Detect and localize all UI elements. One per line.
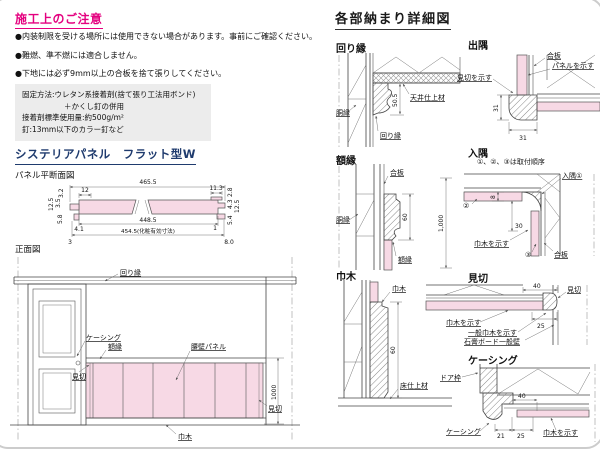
detail-casing-diagram: 40 21 25 ドア枠 ケーシング 巾木を示す [440, 364, 600, 446]
cs-dim-12-5-right: 12.5 [234, 199, 241, 213]
dc-dim-21: 21 [497, 433, 505, 440]
dc-label-casing: ケーシング [446, 427, 481, 436]
di-dim-30: 30 [515, 223, 523, 230]
cs-dim-3-5: 3.5 [55, 198, 62, 208]
fv-label-casing: ケーシング [86, 333, 121, 342]
dm-dimension: 50.5 [390, 84, 404, 115]
cs-dim-1: 1 [213, 225, 217, 232]
fv-label-frame: 額縁 [108, 342, 122, 351]
di-labels: 入隅① ② 巾木を示す ③ 合板 [463, 171, 582, 259]
dg-dim-60: 60 [402, 213, 409, 221]
fv-label-crown: 回り縁 [120, 268, 141, 277]
cs-dim-4-1: 4.1 [74, 226, 84, 233]
fixing-line-4: 釘:13mm以下のカラー釘など [22, 124, 204, 136]
fv-label-habaki: 巾木 [178, 432, 192, 441]
dc-labels: ドア枠 ケーシング 巾木を示す [440, 373, 578, 437]
fv-dimension: 1000 [264, 358, 284, 424]
dh-dim-60: 60 [390, 346, 397, 354]
dmi-label-habaki: 巾木を示す [446, 318, 481, 327]
fv-label-panel: 腰壁パネル [191, 342, 226, 351]
fv-geometry [10, 257, 300, 441]
dmi-label-mikiri: 見切 [567, 286, 581, 294]
fv-dim-1000: 1000 [271, 385, 278, 400]
cs-dim-3-2: 3.2 [58, 188, 65, 198]
cs-dim-448-5: 448.5 [139, 217, 156, 224]
dmi-dim-40: 40 [533, 283, 541, 290]
dd-dim-31-h: 31 [519, 135, 527, 142]
dd-label-panel: パネルを示す [552, 62, 594, 70]
dm-label-ceiling: 天井仕上材 [410, 93, 445, 102]
cs-dim-8-0: 8.0 [224, 239, 234, 246]
cs-dim-total-width: 465.5 [139, 179, 156, 186]
di-label-habaki: 巾木を示す [474, 239, 509, 248]
fv-label-mikiri-left: 見切 [72, 373, 86, 381]
di-label-2: ② [463, 202, 469, 210]
details-title: 各部納まり詳細図 [335, 8, 451, 30]
dm-dim-50-5: 50.5 [392, 93, 399, 107]
dh-label-floor: 床仕上材 [400, 381, 428, 390]
dm-label-mawaribuchi: 回り縁 [380, 131, 401, 140]
detail-desumi-diagram: 31 31 合板 パネルを示す 見切を示す [455, 50, 600, 148]
fixing-method-box: 固定方法:ウレタン系接着剤(捨て張り工法用ボンド) ＋かくし釘の併用 接着剤標準… [15, 84, 211, 141]
note-bullet-2: ●難燃、準不燃には適合しません。 [15, 50, 142, 61]
fixing-line-2: ＋かくし釘の併用 [22, 101, 204, 113]
note-bullet-1: ●内装制限を受ける場所には使用できない場合があります。事前にご確認ください。 [15, 31, 317, 42]
detail-mikiri-diagram: 40 25 見切 巾木を示す 一般巾木を示す 石膏ボード一般壁 [420, 283, 598, 347]
di-dim-8: 8 [490, 195, 497, 199]
notes-title: 施工上のご注意 [15, 10, 103, 29]
dc-dim-40: 40 [518, 393, 526, 400]
dd-dim-31-v: 31 [493, 104, 500, 112]
fixing-line-1: 固定方法:ウレタン系接着剤(捨て張り工法用ボンド) [22, 89, 204, 101]
cs-dim-11-3: 11.3 [209, 185, 223, 192]
fixing-line-3: 接着剤標準使用量:約500g/m² [22, 112, 204, 124]
cs-dim-4-3: 4.3 [227, 199, 234, 209]
fv-label-mikiri-right: 見切 [268, 405, 282, 413]
dmi-label-gypsum: 石膏ボード一般壁 [464, 337, 520, 346]
cs-dim-5-8: 5.8 [57, 214, 64, 224]
dd-label-gouhan: 合板 [547, 51, 561, 60]
product-title: システリアパネル フラット型W [15, 146, 196, 165]
panel-cross-section-diagram: 465.5 3.2 12 11.3 2.8 12.5 3.5 5.8 448.5… [48, 177, 244, 247]
cs-dim-12: 12 [81, 187, 89, 194]
cs-dim-12-5-left: 12.5 [48, 197, 55, 211]
cs-dim-2-8: 2.8 [227, 187, 234, 197]
dc-label-doorframe: ドア枠 [440, 373, 461, 382]
dg-label-gouhan: 合板 [390, 168, 404, 177]
detail-irisumi-diagram: 8 30 入隅① ② 巾木を示す ③ 合板 [462, 168, 600, 260]
dg-label-gakubuchi: 額縁 [398, 255, 412, 264]
front-view-diagram: 1000 回り縁 ケーシング 額縁 腰壁パネル 見切 見切 巾木 [8, 253, 302, 445]
dg-dim-1000: 1,000 [438, 215, 445, 232]
dmi-dim-25: 25 [537, 323, 545, 330]
dh-label-habaki: 巾木 [392, 284, 406, 293]
dg-label-dobuchi: 胴縁 [336, 215, 350, 224]
dg-dimensions: 60 1,000 [398, 178, 452, 268]
di-label-irisumi-1: 入隅① [562, 171, 582, 180]
detail-mawaribuchi-diagram: 50.5 天井仕上材 胴縁 回り縁 [336, 53, 462, 149]
cs-dim-3: 3 [68, 239, 72, 246]
note-bullet-3: ●下地には必ず9mm以上の合板を捨て張りしてください。 [15, 68, 226, 79]
cs-dim-effective: 454.5(化粧有効寸法) [121, 227, 175, 235]
dd-label-mikiri: 見切を示す [457, 74, 492, 82]
dmi-label-general: 一般巾木を示す [468, 328, 517, 337]
di-label-3: ③ [525, 251, 531, 259]
detail-gakubuchi-diagram: 60 1,000 合板 胴縁 額縁 [336, 164, 466, 272]
detail-irisumi-note: ①、②、③は取付順序 [477, 157, 545, 167]
di-label-gouhan: 合板 [554, 250, 568, 259]
dm-label-dobuchi: 胴縁 [336, 108, 350, 117]
dc-label-habaki: 巾木を示す [543, 428, 578, 437]
dc-dim-25: 25 [517, 433, 525, 440]
catalog-page: 施工上のご注意 ●内装制限を受ける場所には使用できない場合があります。事前にご確… [0, 0, 600, 451]
cs-dim-5-4: 5.4 [227, 215, 234, 225]
